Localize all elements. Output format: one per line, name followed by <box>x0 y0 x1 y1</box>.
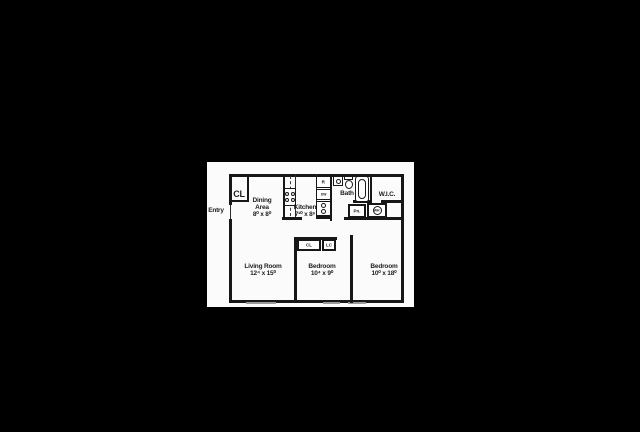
bathtub-basin-icon <box>358 179 366 199</box>
dishwasher-label: DW <box>321 193 327 197</box>
water-heater-box: WH <box>367 203 387 218</box>
toilet-bowl-icon <box>345 180 353 189</box>
wall-outer-left-lower <box>229 219 232 303</box>
room-label-living: Living Room 12⁴ x 15⁰ <box>237 263 289 277</box>
bath-name: Bath <box>340 190 354 197</box>
window-bedroom-middle <box>323 302 340 304</box>
wall-bedroom-right-left <box>350 235 353 303</box>
room-label-bedroom-right: Bedroom 10⁰ x 18⁰ <box>361 263 407 277</box>
linen-closet-label: LC <box>326 243 332 248</box>
living-dims: 12⁴ x 15⁰ <box>237 270 289 277</box>
water-heater-icon: WH <box>373 206 382 215</box>
range-icon <box>285 192 295 202</box>
wic-name: W.I.C. <box>379 191 396 198</box>
window-living-room <box>246 302 276 304</box>
pantry-box: Pn. <box>348 204 366 218</box>
pantry-label: Pn. <box>354 209 361 214</box>
refrigerator-box: R <box>316 176 331 188</box>
entry-door-leaf <box>230 204 231 219</box>
dining-name: Dining Area <box>252 197 271 211</box>
living-name: Living Room <box>244 263 281 270</box>
lavatory-bowl-icon <box>336 179 341 184</box>
screenshot-root: { "scene": { "background_color": "#00000… <box>0 0 640 432</box>
dining-dims: 8⁰ x 8⁰ <box>247 211 277 218</box>
bath-lavatory-box <box>333 176 343 186</box>
bathtub-icon <box>355 176 369 202</box>
room-label-wic: W.I.C. <box>371 191 403 198</box>
entry-label: Entry <box>203 207 229 214</box>
room-label-bedroom-middle: Bedroom 10⁴ x 9⁰ <box>299 263 345 277</box>
bedroom-right-name: Bedroom <box>370 263 397 270</box>
dishwasher-box: DW <box>316 189 331 200</box>
bedroom-middle-name: Bedroom <box>308 263 335 270</box>
burner-icon <box>285 192 289 196</box>
kitchen-name: Kitchen <box>294 204 316 211</box>
entry-closet-text: CL <box>233 189 245 199</box>
entry-text: Entry <box>208 207 224 214</box>
water-heater-label: WH <box>374 209 380 213</box>
hall-closet-box: CL <box>297 239 321 251</box>
kitchen-dims: 7¹⁰ x 8⁶ <box>287 211 323 218</box>
burner-icon <box>291 192 295 196</box>
room-label-kitchen: Kitchen 7¹⁰ x 8⁶ <box>287 204 323 218</box>
bedroom-middle-dims: 10⁴ x 9⁰ <box>299 270 345 277</box>
burner-icon <box>291 198 295 202</box>
wall-bath-wic-divider <box>370 174 372 203</box>
refrigerator-label: R <box>322 180 325 185</box>
linen-closet-box: LC <box>322 239 336 251</box>
burner-icon <box>285 198 289 202</box>
room-label-dining: Dining Area 8⁰ x 8⁰ <box>247 197 277 218</box>
room-label-bath: Bath <box>336 190 358 197</box>
wall-hall-bottom <box>344 217 404 220</box>
hall-closet-label: CL <box>306 243 312 248</box>
bedroom-right-dims: 10⁰ x 18⁰ <box>361 270 407 277</box>
entry-closet-label: CL <box>231 184 247 201</box>
